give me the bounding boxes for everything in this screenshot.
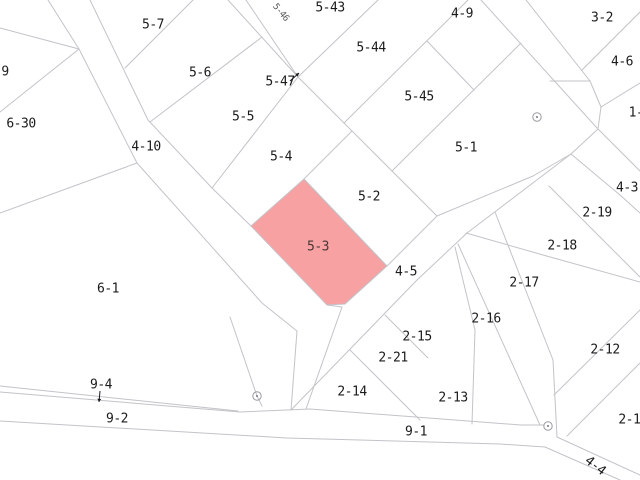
parcel-boundary-line [458,244,540,425]
parcel-label-5-2: 5-2 [358,191,380,204]
parcel-boundary-line [549,186,640,277]
parcel-label-2-21: 2-21 [378,352,407,365]
parcel-label-5-45: 5-45 [404,91,433,104]
parcel-boundary-line [0,421,620,480]
parcel-label-2-17: 2-17 [509,277,538,290]
parcel-label-2-13: 2-13 [438,392,467,405]
parcel-label-5-5: 5-5 [232,111,254,124]
parcel-boundary-line [48,0,297,410]
parcel-boundary-line [571,129,598,154]
parcel-boundary-line [0,163,137,213]
parcel-label-2-11: 2-11 [618,414,640,427]
parcel-label-5-6: 5-6 [189,67,211,80]
parcel-label-2-12: 2-12 [590,344,619,357]
parcel-boundary-line [212,77,298,188]
parcel-boundary-line [598,129,640,171]
parcel-label-9-2: 9-2 [106,413,128,426]
parcel-label-5-47: 5-47 [265,76,294,89]
parcel-boundary-line [598,107,601,129]
parcel-label-5-4: 5-4 [270,151,292,164]
parcel-label-5-7: 5-7 [142,19,164,32]
parcel-label-4-5: 4-5 [395,266,417,279]
parcel-boundary-line [230,317,262,406]
parcel-label-1-: 1- [629,107,640,120]
parcel-label-4-6: 4-6 [611,56,633,69]
parcel-boundary-line [481,0,597,128]
highlighted-parcel-label-5-3: 5-3 [307,241,329,254]
parcel-label-2-15: 2-15 [402,331,431,344]
parcel-label-9-1: 9-1 [405,426,427,439]
parcel-label-3-2: 3-2 [591,12,613,25]
parcel-label-9-4: 9-4 [90,379,112,392]
survey-point-icon [533,113,541,121]
parcel-label-6-30: 6-30 [6,118,35,131]
parcel-label-6-1: 6-1 [97,283,119,296]
parcel-label-5-44: 5-44 [356,42,385,55]
cadastral-map-canvas[interactable]: 5-75-435-464-93-25-444-65-695-475-451-5-… [0,0,640,480]
parcel-boundary-line [437,154,571,216]
parcel-boundary-line [0,49,79,112]
parcel-boundary-line [387,216,437,266]
parcel-boundary-line [344,0,468,123]
survey-point-icon [253,392,261,400]
survey-point-icon [544,422,552,430]
parcel-boundary-line [304,131,352,179]
parcel-boundary-line [228,0,298,77]
parcel-label-2-14: 2-14 [337,386,366,399]
parcel-label-5-1: 5-1 [455,142,477,155]
parcel-boundary-line [125,0,193,68]
parcel-label-9: 9 [1,66,8,79]
parcel-boundary-line [90,0,251,226]
parcel-label-4-3: 4-3 [616,182,638,195]
parcel-boundary-line [427,41,474,90]
parcel-label-5-43: 5-43 [315,2,344,15]
parcel-label-4-10: 4-10 [131,141,160,154]
parcel-label-2-16: 2-16 [471,313,500,326]
parcel-boundary-line [0,386,238,411]
parcel-label-2-18: 2-18 [547,240,576,253]
parcel-label-2-19: 2-19 [582,207,611,220]
parcel-boundary-line [601,83,640,107]
parcel-label-4-9: 4-9 [451,8,473,21]
